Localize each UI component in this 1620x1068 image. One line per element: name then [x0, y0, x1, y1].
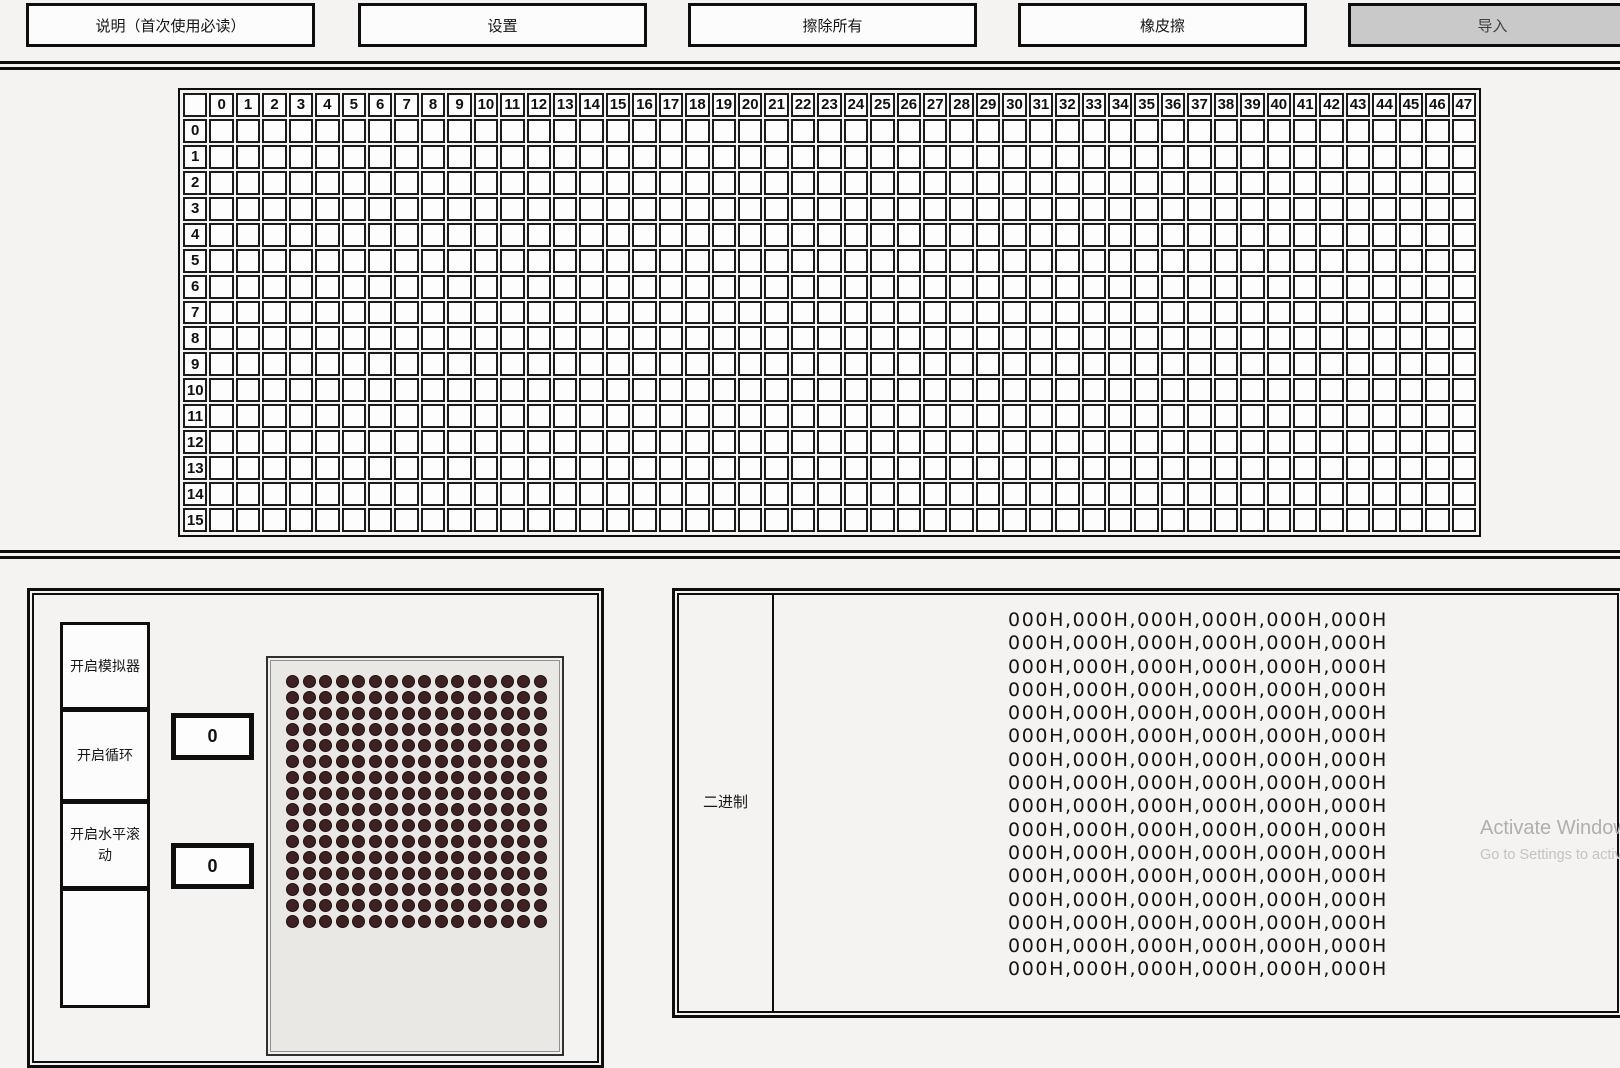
grid-cell[interactable]: [1240, 508, 1264, 532]
grid-cell[interactable]: [1187, 119, 1211, 143]
grid-cell[interactable]: [1082, 456, 1106, 480]
grid-cell[interactable]: [474, 482, 498, 506]
grid-cell[interactable]: [1134, 508, 1158, 532]
grid-cell[interactable]: [817, 197, 841, 221]
grid-cell[interactable]: [421, 223, 445, 247]
grid-cell[interactable]: [923, 508, 947, 532]
grid-cell[interactable]: [870, 249, 894, 273]
grid-cell[interactable]: [315, 404, 339, 428]
grid-cell[interactable]: [1187, 171, 1211, 195]
grid-cell[interactable]: [606, 352, 630, 376]
grid-cell[interactable]: [1372, 326, 1396, 350]
grid-cell[interactable]: [209, 352, 233, 376]
grid-cell[interactable]: [976, 119, 1000, 143]
grid-cell[interactable]: [209, 119, 233, 143]
grid-cell[interactable]: [1425, 404, 1449, 428]
grid-cell[interactable]: [527, 197, 551, 221]
grid-cell[interactable]: [897, 275, 921, 299]
grid-cell[interactable]: [579, 249, 603, 273]
grid-cell[interactable]: [1399, 301, 1423, 325]
grid-cell[interactable]: [579, 508, 603, 532]
grid-cell[interactable]: [685, 275, 709, 299]
grid-cell[interactable]: [527, 352, 551, 376]
grid-cell[interactable]: [209, 197, 233, 221]
grid-cell[interactable]: [606, 482, 630, 506]
grid-cell[interactable]: [1293, 352, 1317, 376]
grid-cell[interactable]: [1029, 430, 1053, 454]
grid-cell[interactable]: [209, 171, 233, 195]
grid-cell[interactable]: [447, 404, 471, 428]
grid-cell[interactable]: [791, 482, 815, 506]
grid-cell[interactable]: [1319, 223, 1343, 247]
grid-cell[interactable]: [844, 430, 868, 454]
grid-cell[interactable]: [527, 275, 551, 299]
grid-cell[interactable]: [1161, 404, 1185, 428]
grid-cell[interactable]: [421, 482, 445, 506]
grid-cell[interactable]: [289, 482, 313, 506]
grid-cell[interactable]: [606, 223, 630, 247]
grid-cell[interactable]: [474, 197, 498, 221]
grid-cell[interactable]: [1082, 171, 1106, 195]
grid-cell[interactable]: [262, 326, 286, 350]
grid-cell[interactable]: [474, 275, 498, 299]
grid-cell[interactable]: [764, 430, 788, 454]
grid-cell[interactable]: [844, 352, 868, 376]
grid-cell[interactable]: [1319, 404, 1343, 428]
grid-cell[interactable]: [764, 171, 788, 195]
grid-cell[interactable]: [844, 275, 868, 299]
grid-cell[interactable]: [1425, 352, 1449, 376]
grid-cell[interactable]: [1187, 482, 1211, 506]
grid-cell[interactable]: [1108, 249, 1132, 273]
grid-cell[interactable]: [685, 197, 709, 221]
grid-cell[interactable]: [632, 145, 656, 169]
grid-cell[interactable]: [1267, 482, 1291, 506]
grid-cell[interactable]: [500, 456, 524, 480]
grid-cell[interactable]: [1240, 171, 1264, 195]
grid-cell[interactable]: [1452, 197, 1476, 221]
grid-cell[interactable]: [1134, 275, 1158, 299]
grid-cell[interactable]: [738, 378, 762, 402]
grid-cell[interactable]: [1346, 301, 1370, 325]
grid-cell[interactable]: [1372, 119, 1396, 143]
grid-cell[interactable]: [844, 145, 868, 169]
grid-cell[interactable]: [447, 508, 471, 532]
grid-cell[interactable]: [1082, 430, 1106, 454]
grid-cell[interactable]: [923, 404, 947, 428]
grid-cell[interactable]: [764, 378, 788, 402]
grid-cell[interactable]: [1346, 404, 1370, 428]
grid-cell[interactable]: [262, 145, 286, 169]
grid-cell[interactable]: [553, 430, 577, 454]
grid-cell[interactable]: [659, 171, 683, 195]
grid-cell[interactable]: [1214, 352, 1238, 376]
grid-cell[interactable]: [1240, 430, 1264, 454]
grid-cell[interactable]: [1055, 275, 1079, 299]
grid-cell[interactable]: [659, 249, 683, 273]
grid-cell[interactable]: [1108, 404, 1132, 428]
grid-cell[interactable]: [817, 301, 841, 325]
grid-cell[interactable]: [1029, 145, 1053, 169]
grid-cell[interactable]: [923, 482, 947, 506]
grid-cell[interactable]: [500, 430, 524, 454]
grid-cell[interactable]: [447, 223, 471, 247]
grid-cell[interactable]: [1214, 508, 1238, 532]
grid-cell[interactable]: [1267, 171, 1291, 195]
grid-cell[interactable]: [659, 404, 683, 428]
grid-cell[interactable]: [1161, 171, 1185, 195]
grid-cell[interactable]: [1399, 223, 1423, 247]
grid-cell[interactable]: [1293, 249, 1317, 273]
grid-cell[interactable]: [1452, 508, 1476, 532]
grid-cell[interactable]: [315, 197, 339, 221]
grid-cell[interactable]: [817, 145, 841, 169]
grid-cell[interactable]: [394, 430, 418, 454]
grid-cell[interactable]: [447, 352, 471, 376]
grid-cell[interactable]: [1187, 326, 1211, 350]
grid-cell[interactable]: [1108, 223, 1132, 247]
grid-cell[interactable]: [1240, 482, 1264, 506]
grid-cell[interactable]: [236, 119, 260, 143]
grid-cell[interactable]: [289, 145, 313, 169]
grid-cell[interactable]: [500, 508, 524, 532]
grid-cell[interactable]: [315, 275, 339, 299]
grid-cell[interactable]: [262, 378, 286, 402]
grid-cell[interactable]: [1319, 249, 1343, 273]
value-box-2[interactable]: 0: [171, 843, 254, 889]
grid-cell[interactable]: [1425, 430, 1449, 454]
grid-cell[interactable]: [817, 508, 841, 532]
grid-cell[interactable]: [579, 171, 603, 195]
grid-cell[interactable]: [1161, 223, 1185, 247]
grid-cell[interactable]: [632, 508, 656, 532]
grid-cell[interactable]: [632, 378, 656, 402]
grid-cell[interactable]: [764, 145, 788, 169]
grid-cell[interactable]: [1267, 197, 1291, 221]
grid-cell[interactable]: [1055, 145, 1079, 169]
grid-cell[interactable]: [685, 508, 709, 532]
grid-cell[interactable]: [1187, 145, 1211, 169]
grid-cell[interactable]: [236, 171, 260, 195]
grid-cell[interactable]: [976, 456, 1000, 480]
grid-cell[interactable]: [1452, 249, 1476, 273]
grid-cell[interactable]: [606, 249, 630, 273]
grid-cell[interactable]: [1082, 326, 1106, 350]
grid-cell[interactable]: [738, 326, 762, 350]
grid-cell[interactable]: [1161, 301, 1185, 325]
start-horizontal-scroll-button[interactable]: 开启水平滚动: [60, 801, 150, 889]
grid-cell[interactable]: [1082, 119, 1106, 143]
grid-cell[interactable]: [949, 119, 973, 143]
grid-cell[interactable]: [1187, 249, 1211, 273]
grid-cell[interactable]: [1267, 275, 1291, 299]
grid-cell[interactable]: [368, 197, 392, 221]
grid-cell[interactable]: [553, 197, 577, 221]
grid-cell[interactable]: [342, 119, 366, 143]
grid-cell[interactable]: [685, 301, 709, 325]
grid-cell[interactable]: [685, 145, 709, 169]
grid-cell[interactable]: [236, 352, 260, 376]
grid-cell[interactable]: [1108, 197, 1132, 221]
grid-cell[interactable]: [553, 249, 577, 273]
grid-cell[interactable]: [474, 326, 498, 350]
grid-cell[interactable]: [474, 145, 498, 169]
grid-cell[interactable]: [606, 508, 630, 532]
grid-cell[interactable]: [368, 352, 392, 376]
grid-cell[interactable]: [1240, 326, 1264, 350]
grid-cell[interactable]: [976, 508, 1000, 532]
grid-cell[interactable]: [262, 352, 286, 376]
grid-cell[interactable]: [1187, 352, 1211, 376]
grid-cell[interactable]: [500, 482, 524, 506]
grid-cell[interactable]: [1425, 249, 1449, 273]
grid-cell[interactable]: [1214, 378, 1238, 402]
grid-cell[interactable]: [685, 223, 709, 247]
grid-cell[interactable]: [949, 145, 973, 169]
grid-cell[interactable]: [1346, 223, 1370, 247]
grid-cell[interactable]: [1372, 275, 1396, 299]
grid-cell[interactable]: [1161, 326, 1185, 350]
grid-cell[interactable]: [1425, 508, 1449, 532]
grid-cell[interactable]: [764, 352, 788, 376]
grid-cell[interactable]: [1002, 301, 1026, 325]
grid-cell[interactable]: [976, 145, 1000, 169]
grid-cell[interactable]: [870, 223, 894, 247]
grid-cell[interactable]: [1346, 456, 1370, 480]
grid-cell[interactable]: [791, 145, 815, 169]
grid-cell[interactable]: [712, 404, 736, 428]
grid-cell[interactable]: [1293, 430, 1317, 454]
grid-cell[interactable]: [1293, 508, 1317, 532]
grid-cell[interactable]: [1214, 404, 1238, 428]
grid-cell[interactable]: [289, 249, 313, 273]
grid-cell[interactable]: [262, 456, 286, 480]
grid-cell[interactable]: [976, 223, 1000, 247]
grid-cell[interactable]: [1214, 326, 1238, 350]
grid-cell[interactable]: [817, 119, 841, 143]
grid-cell[interactable]: [870, 145, 894, 169]
grid-cell[interactable]: [209, 223, 233, 247]
grid-cell[interactable]: [1267, 223, 1291, 247]
grid-cell[interactable]: [500, 171, 524, 195]
grid-cell[interactable]: [1108, 275, 1132, 299]
grid-cell[interactable]: [632, 352, 656, 376]
grid-cell[interactable]: [1002, 249, 1026, 273]
grid-cell[interactable]: [474, 119, 498, 143]
grid-cell[interactable]: [1452, 301, 1476, 325]
grid-cell[interactable]: [923, 223, 947, 247]
grid-cell[interactable]: [738, 352, 762, 376]
grid-cell[interactable]: [315, 326, 339, 350]
grid-cell[interactable]: [394, 275, 418, 299]
grid-cell[interactable]: [1425, 223, 1449, 247]
grid-cell[interactable]: [712, 378, 736, 402]
grid-cell[interactable]: [1293, 404, 1317, 428]
start-simulator-button[interactable]: 开启模拟器: [60, 622, 150, 710]
grid-cell[interactable]: [1108, 145, 1132, 169]
grid-cell[interactable]: [553, 223, 577, 247]
grid-cell[interactable]: [738, 171, 762, 195]
grid-cell[interactable]: [632, 430, 656, 454]
grid-cell[interactable]: [368, 378, 392, 402]
grid-cell[interactable]: [632, 404, 656, 428]
grid-cell[interactable]: [262, 171, 286, 195]
help-button[interactable]: 说明（首次使用必读）: [26, 3, 315, 47]
grid-cell[interactable]: [1055, 482, 1079, 506]
grid-cell[interactable]: [1029, 326, 1053, 350]
grid-cell[interactable]: [579, 119, 603, 143]
grid-cell[interactable]: [236, 482, 260, 506]
grid-cell[interactable]: [949, 378, 973, 402]
grid-cell[interactable]: [527, 404, 551, 428]
grid-cell[interactable]: [1319, 301, 1343, 325]
grid-cell[interactable]: [342, 482, 366, 506]
grid-cell[interactable]: [976, 275, 1000, 299]
grid-cell[interactable]: [1134, 145, 1158, 169]
grid-cell[interactable]: [738, 145, 762, 169]
grid-cell[interactable]: [500, 145, 524, 169]
grid-cell[interactable]: [712, 171, 736, 195]
grid-cell[interactable]: [976, 171, 1000, 195]
grid-cell[interactable]: [342, 326, 366, 350]
grid-cell[interactable]: [500, 275, 524, 299]
grid-cell[interactable]: [1319, 145, 1343, 169]
grid-cell[interactable]: [1108, 326, 1132, 350]
grid-cell[interactable]: [764, 197, 788, 221]
partial-bottom-button[interactable]: [60, 888, 150, 1008]
grid-cell[interactable]: [1055, 404, 1079, 428]
grid-cell[interactable]: [1240, 301, 1264, 325]
grid-cell[interactable]: [553, 119, 577, 143]
grid-cell[interactable]: [1346, 326, 1370, 350]
grid-cell[interactable]: [209, 145, 233, 169]
grid-cell[interactable]: [1134, 119, 1158, 143]
grid-cell[interactable]: [1161, 508, 1185, 532]
grid-cell[interactable]: [738, 482, 762, 506]
grid-cell[interactable]: [1293, 326, 1317, 350]
grid-cell[interactable]: [289, 119, 313, 143]
grid-cell[interactable]: [553, 301, 577, 325]
grid-cell[interactable]: [342, 197, 366, 221]
grid-cell[interactable]: [500, 301, 524, 325]
grid-cell[interactable]: [342, 249, 366, 273]
grid-cell[interactable]: [1319, 352, 1343, 376]
grid-cell[interactable]: [606, 275, 630, 299]
grid-cell[interactable]: [1425, 301, 1449, 325]
grid-cell[interactable]: [1002, 119, 1026, 143]
grid-cell[interactable]: [659, 352, 683, 376]
grid-cell[interactable]: [632, 301, 656, 325]
grid-cell[interactable]: [579, 301, 603, 325]
grid-cell[interactable]: [791, 275, 815, 299]
grid-cell[interactable]: [474, 456, 498, 480]
grid-cell[interactable]: [1029, 223, 1053, 247]
grid-cell[interactable]: [844, 404, 868, 428]
grid-cell[interactable]: [632, 249, 656, 273]
grid-cell[interactable]: [553, 145, 577, 169]
grid-cell[interactable]: [500, 197, 524, 221]
grid-cell[interactable]: [870, 301, 894, 325]
grid-cell[interactable]: [1346, 145, 1370, 169]
grid-cell[interactable]: [817, 456, 841, 480]
grid-cell[interactable]: [1055, 171, 1079, 195]
grid-cell[interactable]: [209, 404, 233, 428]
grid-cell[interactable]: [527, 249, 551, 273]
grid-cell[interactable]: [1399, 275, 1423, 299]
grid-cell[interactable]: [659, 456, 683, 480]
grid-cell[interactable]: [1134, 197, 1158, 221]
grid-cell[interactable]: [262, 482, 286, 506]
grid-cell[interactable]: [1029, 482, 1053, 506]
grid-cell[interactable]: [712, 326, 736, 350]
grid-cell[interactable]: [394, 508, 418, 532]
grid-cell[interactable]: [685, 456, 709, 480]
grid-cell[interactable]: [209, 378, 233, 402]
grid-cell[interactable]: [1319, 508, 1343, 532]
grid-cell[interactable]: [315, 223, 339, 247]
grid-cell[interactable]: [1134, 430, 1158, 454]
grid-cell[interactable]: [1293, 456, 1317, 480]
grid-cell[interactable]: [1002, 430, 1026, 454]
grid-cell[interactable]: [1134, 352, 1158, 376]
grid-cell[interactable]: [1346, 275, 1370, 299]
grid-cell[interactable]: [738, 223, 762, 247]
grid-cell[interactable]: [209, 482, 233, 506]
grid-cell[interactable]: [1319, 275, 1343, 299]
grid-cell[interactable]: [685, 171, 709, 195]
grid-cell[interactable]: [1319, 430, 1343, 454]
grid-cell[interactable]: [1452, 171, 1476, 195]
grid-cell[interactable]: [1214, 171, 1238, 195]
grid-cell[interactable]: [870, 404, 894, 428]
grid-cell[interactable]: [923, 197, 947, 221]
grid-cell[interactable]: [659, 223, 683, 247]
grid-cell[interactable]: [870, 352, 894, 376]
grid-cell[interactable]: [1082, 223, 1106, 247]
grid-cell[interactable]: [500, 404, 524, 428]
grid-cell[interactable]: [209, 430, 233, 454]
grid-cell[interactable]: [421, 456, 445, 480]
grid-cell[interactable]: [606, 171, 630, 195]
grid-cell[interactable]: [791, 352, 815, 376]
grid-cell[interactable]: [394, 404, 418, 428]
grid-cell[interactable]: [738, 119, 762, 143]
grid-cell[interactable]: [1372, 171, 1396, 195]
grid-cell[interactable]: [1082, 378, 1106, 402]
grid-cell[interactable]: [1267, 456, 1291, 480]
grid-cell[interactable]: [844, 301, 868, 325]
grid-cell[interactable]: [1240, 197, 1264, 221]
grid-cell[interactable]: [474, 378, 498, 402]
grid-cell[interactable]: [527, 171, 551, 195]
grid-cell[interactable]: [1267, 430, 1291, 454]
grid-cell[interactable]: [262, 404, 286, 428]
grid-cell[interactable]: [764, 301, 788, 325]
grid-cell[interactable]: [1267, 145, 1291, 169]
grid-cell[interactable]: [949, 352, 973, 376]
grid-cell[interactable]: [421, 352, 445, 376]
grid-cell[interactable]: [659, 197, 683, 221]
grid-cell[interactable]: [712, 352, 736, 376]
grid-cell[interactable]: [1134, 223, 1158, 247]
grid-cell[interactable]: [949, 404, 973, 428]
grid-cell[interactable]: [500, 352, 524, 376]
grid-cell[interactable]: [923, 430, 947, 454]
grid-cell[interactable]: [315, 352, 339, 376]
grid-cell[interactable]: [817, 249, 841, 273]
grid-cell[interactable]: [870, 456, 894, 480]
grid-cell[interactable]: [342, 171, 366, 195]
